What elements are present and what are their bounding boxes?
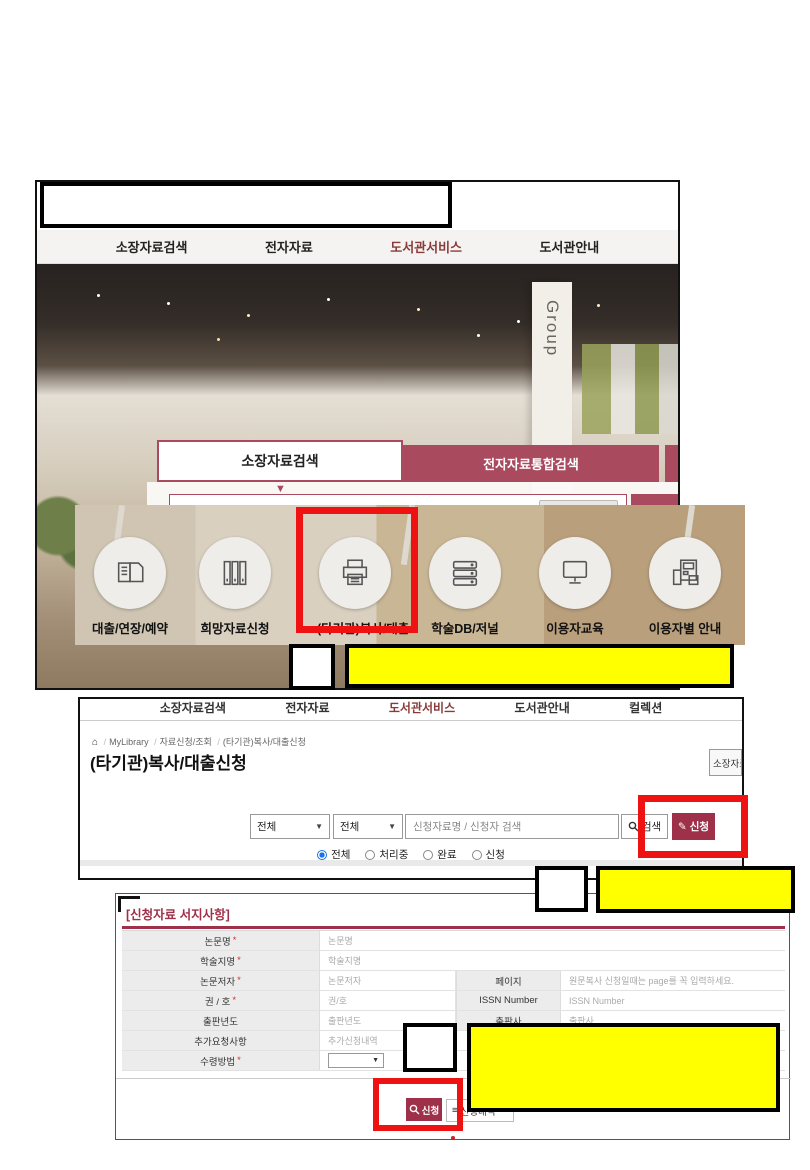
breadcrumb-request[interactable]: 자료신청/조회	[160, 737, 212, 747]
filter-select-1[interactable]: 전체▼	[250, 814, 330, 839]
field-label: 수령방법*	[122, 1051, 320, 1070]
nav-item-library-guide[interactable]: 도서관안내	[515, 699, 570, 716]
page-nav: 소장자료검색 전자자료 도서관서비스 도서관안내 컬렉션	[80, 697, 742, 721]
kiosk-docs-icon	[668, 556, 702, 590]
binders-icon	[218, 556, 252, 590]
highlight-box-submit-button	[373, 1078, 463, 1131]
field-label: ISSN Number	[456, 991, 561, 1010]
quickmenu-user-guide[interactable]: 이용자별 안내	[647, 537, 723, 637]
select-value: 전체	[257, 819, 276, 834]
corner-mark	[118, 896, 121, 912]
annotation-yellow-box-b	[596, 866, 795, 913]
field-label: 추가요청사항	[122, 1031, 320, 1050]
nav-item-collection[interactable]: 컬렉션	[629, 699, 662, 716]
chevron-down-icon: ▼	[315, 822, 323, 831]
select-value: 전체	[340, 819, 359, 834]
required-mark: *	[233, 935, 237, 946]
home-icon[interactable]: ⌂	[92, 737, 98, 748]
required-mark: *	[232, 995, 236, 1006]
field-label: 논문명*	[122, 931, 320, 950]
breadcrumb: ⌂ /MyLibrary /자료신청/조회 /(타기관)복사/대출신청	[92, 735, 306, 748]
annotation-white-box-b	[535, 866, 588, 912]
annotation-yellow-box-c	[467, 1023, 780, 1112]
chevron-down-icon: ▼	[388, 822, 396, 831]
field-label: 출판년도	[122, 1011, 320, 1030]
form-section-title: [신청자료 서지사항]	[126, 904, 230, 923]
page-field[interactable]: 원문복사 신청일때는 page를 꼭 입력하세요.	[561, 971, 785, 990]
logo-redaction-box	[40, 182, 452, 228]
nav-item-collection-search[interactable]: 소장자료검색	[116, 237, 188, 256]
quickmenu-label: 희망자료신청	[197, 618, 273, 637]
field-label: 페이지	[456, 971, 561, 990]
journal-title-field[interactable]: 학술지명	[320, 951, 785, 970]
quickmenu-user-education[interactable]: 이용자교육	[537, 537, 613, 637]
nav-item-e-resources[interactable]: 전자자료	[265, 237, 313, 256]
nav-item-library-services[interactable]: 도서관서비스	[389, 699, 455, 716]
nav-item-library-services[interactable]: 도서관서비스	[390, 237, 462, 256]
quickmenu-academic-db[interactable]: 학술DB/저널	[427, 537, 503, 637]
green-wall-decor	[582, 344, 678, 434]
form-row-journal-title: 학술지명* 학술지명	[122, 951, 785, 971]
nav-item-e-resources[interactable]: 전자자료	[285, 699, 329, 716]
quickmenu-loan[interactable]: 대출/연장/예약	[92, 537, 168, 637]
nav-item-collection-search[interactable]: 소장자료검색	[160, 699, 226, 716]
ceiling-lights	[97, 294, 100, 297]
corner-mark	[118, 896, 140, 899]
highlight-box-request-button	[638, 795, 748, 858]
form-row-volume-issn: 권 / 호* 권/호 ISSN Number ISSN Number	[122, 991, 785, 1011]
receive-method-select[interactable]: ▼	[328, 1053, 384, 1068]
issn-field[interactable]: ISSN Number	[561, 991, 785, 1010]
tab-fragment[interactable]	[665, 445, 678, 482]
red-dot-mark	[451, 1136, 455, 1140]
quickmenu-label: 대출/연장/예약	[92, 618, 168, 637]
section-divider	[122, 926, 785, 929]
radio-icon	[365, 850, 375, 860]
quickmenu-label: 이용자교육	[537, 618, 613, 637]
monitor-icon	[558, 556, 592, 590]
breadcrumb-mylibrary[interactable]: MyLibrary	[109, 737, 149, 747]
field-label: 논문저자*	[122, 971, 320, 990]
highlight-box-ill-menu	[296, 507, 418, 633]
annotation-yellow-box-a	[345, 644, 734, 688]
nav-item-library-guide[interactable]: 도서관안내	[539, 237, 599, 256]
pillar-text-group: Group	[542, 300, 562, 357]
annotation-white-box-a	[289, 644, 335, 690]
filter-search-input[interactable]	[405, 814, 619, 839]
main-nav: 소장자료검색 전자자료 도서관서비스 도서관안내	[37, 230, 678, 264]
breadcrumb-current: (타기관)복사/대출신청	[223, 737, 306, 747]
site-header: 소장자료검색 전자자료 도서관서비스 도서관안내	[37, 182, 678, 264]
tab-integrated-e-search[interactable]: 전자자료통합검색	[403, 445, 659, 482]
quickmenu-label: 학술DB/저널	[427, 618, 503, 637]
book-document-icon	[113, 556, 147, 590]
field-label: 권 / 호*	[122, 991, 320, 1010]
active-tab-caret-icon: ▼	[275, 483, 286, 495]
form-row-author-page: 논문저자* 논문저자 페이지 원문복사 신청일때는 page를 꼭 입력하세요.	[122, 971, 785, 991]
field-label: 학술지명*	[122, 951, 320, 970]
radio-icon	[423, 850, 433, 860]
article-title-field[interactable]: 논문명	[320, 931, 785, 950]
quickmenu-label: 이용자별 안내	[647, 618, 723, 637]
author-field[interactable]: 논문저자	[320, 971, 456, 990]
chevron-down-icon: ▼	[372, 1057, 379, 1064]
server-stack-icon	[448, 556, 482, 590]
collection-side-button[interactable]: 소장자료	[709, 749, 742, 776]
quickmenu-wish-request[interactable]: 희망자료신청	[197, 537, 273, 637]
form-row-article-title: 논문명* 논문명	[122, 931, 785, 951]
page-title: (타기관)복사/대출신청	[90, 749, 247, 774]
required-mark: *	[237, 975, 241, 986]
radio-icon	[472, 850, 482, 860]
tab-collection-search[interactable]: 소장자료검색	[157, 440, 403, 482]
required-mark: *	[237, 1055, 241, 1066]
required-mark: *	[237, 955, 241, 966]
radio-selected-icon	[317, 850, 327, 860]
volume-field[interactable]: 권/호	[320, 991, 456, 1010]
annotation-white-box-c	[403, 1023, 457, 1072]
filter-select-2[interactable]: 전체▼	[333, 814, 403, 839]
